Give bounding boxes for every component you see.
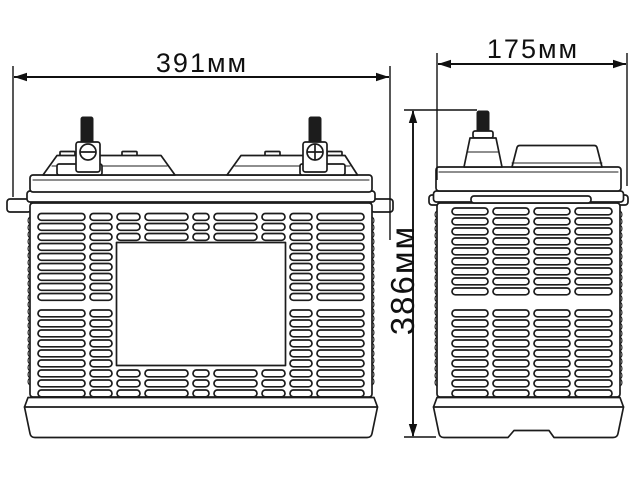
- terminal-stud: [309, 117, 321, 145]
- vent-rib: [38, 224, 85, 231]
- vent-rib: [145, 390, 188, 397]
- vent-rib: [90, 294, 112, 301]
- vent-rib: [90, 350, 112, 357]
- vent-rib: [117, 370, 140, 377]
- front-width-label: 391мм: [156, 48, 248, 78]
- vent-rib: [38, 264, 85, 271]
- positive-terminal: [303, 117, 327, 172]
- vent-rib: [317, 320, 364, 327]
- vent-rib: [575, 258, 612, 265]
- vent-rib: [534, 350, 570, 357]
- vent-rib: [493, 350, 529, 357]
- vent-rib: [90, 370, 112, 377]
- vent-rib: [290, 340, 312, 347]
- vent-rib: [290, 330, 312, 337]
- vent-rib: [493, 248, 529, 255]
- vent-rib: [317, 224, 364, 231]
- vent-rib: [452, 208, 488, 215]
- vent-rib: [575, 370, 612, 377]
- vent-rib: [575, 248, 612, 255]
- vent-rib: [290, 294, 312, 301]
- vent-rib: [262, 370, 285, 377]
- vent-rib: [317, 380, 364, 387]
- vent-rib: [452, 278, 488, 285]
- vent-rib: [452, 218, 488, 225]
- vent-rib: [38, 320, 85, 327]
- vent-rib: [38, 340, 85, 347]
- terminal-collar: [473, 131, 493, 138]
- vent-rib: [534, 218, 570, 225]
- vent-rib: [493, 360, 529, 367]
- vent-rib: [575, 310, 612, 317]
- terminal-stud: [81, 117, 93, 145]
- vent-rib: [90, 330, 112, 337]
- vent-rib: [117, 224, 140, 231]
- vent-rib: [493, 288, 529, 295]
- vent-rib: [493, 340, 529, 347]
- vent-rib: [452, 310, 488, 317]
- vent-rib: [38, 254, 85, 261]
- vent-rib: [262, 380, 285, 387]
- vent-rib: [38, 360, 85, 367]
- arrowhead-left: [438, 60, 451, 68]
- vent-rib: [145, 224, 188, 231]
- vent-rib: [317, 310, 364, 317]
- vent-rib: [493, 268, 529, 275]
- vent-rib: [452, 320, 488, 327]
- vent-rib: [290, 370, 312, 377]
- front-lid: [30, 175, 372, 192]
- vent-rib: [38, 380, 85, 387]
- vent-rib: [493, 238, 529, 245]
- vent-rib: [534, 340, 570, 347]
- vent-rib: [117, 214, 140, 221]
- vent-rib: [317, 214, 364, 221]
- vent-rib: [534, 380, 570, 387]
- vent-rib: [38, 234, 85, 241]
- handle-slot: [471, 196, 591, 203]
- vent-rib: [193, 370, 209, 377]
- vent-rib: [317, 370, 364, 377]
- vent-rib: [290, 264, 312, 271]
- vent-rib: [493, 320, 529, 327]
- vent-rib: [90, 320, 112, 327]
- vent-rib: [90, 274, 112, 281]
- vent-rib: [38, 390, 85, 397]
- vent-rib: [534, 370, 570, 377]
- vent-rib: [38, 274, 85, 281]
- vent-rib: [38, 330, 85, 337]
- vent-rib: [90, 380, 112, 387]
- vent-rib: [262, 234, 285, 241]
- vent-rib: [90, 264, 112, 271]
- vent-rib: [534, 238, 570, 245]
- vent-rib: [493, 310, 529, 317]
- vent-rib: [317, 360, 364, 367]
- vent-rib: [575, 228, 612, 235]
- vent-rib: [117, 380, 140, 387]
- vent-rib: [575, 288, 612, 295]
- vent-rib: [38, 284, 85, 291]
- vent-rib: [38, 244, 85, 251]
- side-view: [429, 111, 628, 438]
- vent-rib: [317, 234, 364, 241]
- vent-rib: [493, 218, 529, 225]
- vent-rib: [214, 390, 257, 397]
- vent-rib: [575, 340, 612, 347]
- vent-rib: [290, 390, 312, 397]
- vent-rib: [145, 234, 188, 241]
- vent-rib: [493, 258, 529, 265]
- vent-rib: [534, 258, 570, 265]
- vent-rib: [290, 320, 312, 327]
- vent-rib: [90, 310, 112, 317]
- vent-rib: [317, 294, 364, 301]
- battery-dimensions-diagram: 391мм 175мм 386мм: [0, 0, 640, 480]
- diagram-canvas: 391мм 175мм 386мм: [0, 0, 640, 480]
- vent-rib: [145, 380, 188, 387]
- vent-rib: [575, 278, 612, 285]
- vent-rib: [290, 234, 312, 241]
- label-panel: [117, 243, 286, 366]
- vent-rib: [317, 284, 364, 291]
- vent-rib: [317, 264, 364, 271]
- vent-rib: [575, 380, 612, 387]
- vent-rib: [262, 224, 285, 231]
- vent-rib: [452, 268, 488, 275]
- vent-rib: [317, 254, 364, 261]
- vent-rib: [290, 244, 312, 251]
- vent-rib: [90, 340, 112, 347]
- vent-rib: [317, 340, 364, 347]
- vent-rib: [90, 254, 112, 261]
- vent-rib: [214, 224, 257, 231]
- arrowhead-up: [409, 110, 417, 123]
- vent-rib: [534, 330, 570, 337]
- vent-rib: [90, 214, 112, 221]
- vent-rib: [493, 370, 529, 377]
- vent-rib: [317, 274, 364, 281]
- vent-rib: [193, 380, 209, 387]
- vent-rib: [452, 340, 488, 347]
- vent-rib: [38, 370, 85, 377]
- vent-rib: [90, 360, 112, 367]
- vent-rib: [534, 208, 570, 215]
- vent-rib: [38, 294, 85, 301]
- vent-rib: [575, 208, 612, 215]
- vent-rib: [534, 360, 570, 367]
- vent-rib: [493, 390, 529, 397]
- arrowhead-down: [409, 424, 417, 437]
- vent-rib: [534, 288, 570, 295]
- vent-rib: [534, 228, 570, 235]
- vent-rib: [193, 224, 209, 231]
- vent-rib: [575, 218, 612, 225]
- vent-rib: [214, 234, 257, 241]
- arrowhead-right: [613, 60, 626, 68]
- vent-rib: [452, 330, 488, 337]
- negative-terminal: [76, 117, 100, 172]
- vent-rib: [317, 330, 364, 337]
- vent-rib: [145, 214, 188, 221]
- side-base-tray: [434, 398, 624, 438]
- vent-rib: [38, 350, 85, 357]
- vent-rib: [575, 238, 612, 245]
- vent-rib: [290, 224, 312, 231]
- vent-rib: [493, 330, 529, 337]
- side-lid-block: [512, 146, 602, 168]
- vent-rib: [262, 390, 285, 397]
- vent-rib: [38, 310, 85, 317]
- vent-rib: [262, 214, 285, 221]
- arrowhead-right: [376, 73, 389, 81]
- vent-rib: [452, 258, 488, 265]
- vent-rib: [575, 360, 612, 367]
- base-outline: [434, 398, 624, 438]
- vent-rib: [575, 320, 612, 327]
- vent-rib: [193, 214, 209, 221]
- front-base-tray: [25, 398, 378, 438]
- vent-rib: [452, 288, 488, 295]
- front-view: [7, 117, 393, 438]
- vent-rib: [193, 234, 209, 241]
- vent-rib: [90, 284, 112, 291]
- vent-rib: [90, 244, 112, 251]
- vent-rib: [452, 248, 488, 255]
- vent-rib: [534, 320, 570, 327]
- vent-rib: [575, 390, 612, 397]
- side-depth-label: 175мм: [487, 34, 579, 64]
- vent-rib: [38, 214, 85, 221]
- vent-rib: [452, 350, 488, 357]
- vent-rib: [452, 380, 488, 387]
- vent-rib: [534, 310, 570, 317]
- vent-rib: [493, 380, 529, 387]
- vent-rib: [452, 360, 488, 367]
- vent-rib: [90, 224, 112, 231]
- vent-rib: [534, 268, 570, 275]
- height-label: 386мм: [384, 225, 421, 335]
- vent-rib: [534, 278, 570, 285]
- vent-rib: [290, 254, 312, 261]
- vent-rib: [117, 234, 140, 241]
- vent-rib: [214, 370, 257, 377]
- vent-rib: [575, 268, 612, 275]
- vent-rib: [145, 370, 188, 377]
- vent-rib: [493, 278, 529, 285]
- vent-rib: [452, 370, 488, 377]
- side-terminal: [464, 111, 502, 167]
- vent-rib: [290, 214, 312, 221]
- vent-rib: [290, 380, 312, 387]
- vent-rib: [290, 310, 312, 317]
- block-outline: [512, 146, 602, 168]
- vent-rib: [290, 350, 312, 357]
- vent-rib: [317, 350, 364, 357]
- vent-rib: [317, 390, 364, 397]
- vent-rib: [90, 390, 112, 397]
- vent-rib: [493, 228, 529, 235]
- arrowhead-left: [14, 73, 27, 81]
- vent-rib: [575, 330, 612, 337]
- base-outline: [25, 398, 378, 438]
- vent-rib: [290, 360, 312, 367]
- vent-rib: [290, 284, 312, 291]
- vent-rib: [90, 234, 112, 241]
- vent-rib: [452, 228, 488, 235]
- side-lid: [436, 167, 621, 191]
- vent-rib: [214, 214, 257, 221]
- vent-rib: [117, 390, 140, 397]
- vent-rib: [534, 248, 570, 255]
- vent-rib: [193, 390, 209, 397]
- vent-rib: [452, 238, 488, 245]
- vent-rib: [317, 244, 364, 251]
- vent-rib: [534, 390, 570, 397]
- vent-rib: [214, 380, 257, 387]
- vent-rib: [452, 390, 488, 397]
- vent-rib: [290, 274, 312, 281]
- vent-rib: [493, 208, 529, 215]
- vent-rib: [575, 350, 612, 357]
